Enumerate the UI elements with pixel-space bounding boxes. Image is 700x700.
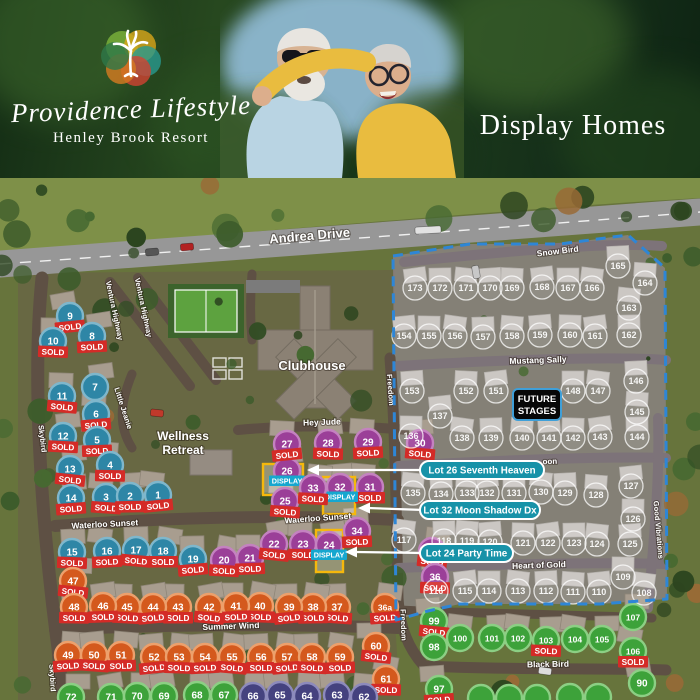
callout-label: Lot 32 Moon Shadow Dx [423, 506, 537, 517]
lot-marker-19: 19SOLD [178, 546, 209, 577]
lot-number: 18 [157, 547, 169, 558]
future-lot-number: 124 [589, 539, 604, 549]
tree [657, 603, 672, 618]
sold-badge-label: SOLD [110, 662, 133, 671]
lot-marker-8: 8SOLD [77, 323, 108, 353]
future-lot-number: 108 [636, 588, 651, 598]
future-lot-marker-146: 146 [624, 369, 648, 393]
sold-badge-label: SOLD [59, 504, 82, 515]
lot-number: 63 [331, 691, 343, 700]
lot-circle [524, 685, 550, 700]
lot-marker-68: 68 [184, 682, 210, 700]
callout-arrow-line [355, 552, 424, 553]
tree [216, 221, 243, 248]
lot-circle [468, 685, 494, 700]
sold-badge-label: SOLD [224, 612, 247, 622]
lot-number: 105 [595, 635, 609, 645]
lot-marker-103: 103SOLD [531, 627, 561, 657]
lot-marker-18: 18SOLD [148, 538, 178, 568]
sold-badge-label: SOLD [99, 472, 122, 481]
future-lot-number: 130 [533, 487, 548, 497]
future-lot-number: 126 [625, 514, 640, 524]
future-lot-marker-168: 168 [530, 275, 554, 299]
sold-badge: SOLD [53, 659, 84, 673]
lot-marker-107: 107 [620, 604, 646, 630]
tree [249, 322, 267, 340]
sold-badge: SOLD [190, 661, 221, 674]
sold-badge: SOLD [342, 535, 372, 548]
future-lot-number: 156 [447, 331, 462, 341]
lot-marker-106: 106SOLD [618, 638, 648, 668]
lot-marker-98: 98 [421, 634, 447, 660]
tree [662, 253, 672, 263]
lot-marker-71: 71 [98, 684, 124, 700]
future-lot-marker-166: 166 [580, 276, 604, 300]
sold-badge: SOLD [297, 661, 328, 674]
display-homes-page: Providence Lifestyle Henley Brook Resort… [0, 0, 700, 700]
sold-badge-label: SOLD [238, 565, 261, 575]
future-lot-number: 129 [557, 488, 572, 498]
sold-badge-label: SOLD [167, 664, 190, 674]
brand-subtitle: Henley Brook Resort [0, 130, 262, 147]
tree [555, 188, 582, 215]
future-lot-marker-138: 138 [450, 426, 474, 450]
future-lot-marker-156: 156 [443, 324, 467, 348]
future-lot-number: 145 [629, 407, 644, 417]
masterplan-map: Andrea DriveVentura HighwayVentura Highw… [0, 178, 700, 700]
sold-badge: SOLD [148, 556, 178, 568]
lot-marker-64: 64 [294, 683, 320, 700]
lot-marker-31: 31SOLD [355, 474, 385, 504]
sold-badge-label: SOLD [328, 664, 351, 674]
sold-badge: SOLD [115, 501, 145, 513]
display-badge-label: DISPLAY [325, 493, 356, 502]
sold-badge: SOLD [298, 492, 329, 505]
lot-marker-28: 28SOLD [313, 430, 343, 460]
future-lot-marker-135: 135 [401, 481, 425, 505]
sold-badge-label: SOLD [82, 661, 105, 672]
lot-marker-102: 102 [505, 625, 531, 651]
future-lot-number: 142 [565, 433, 580, 443]
future-lot-number: 121 [515, 538, 530, 548]
future-lot-marker-110: 110 [587, 580, 611, 604]
sold-badge: SOLD [56, 502, 87, 516]
future-stages-line2: STAGES [518, 406, 556, 417]
sold-badge-label: SOLD [373, 613, 396, 624]
future-lot-number: 157 [475, 332, 490, 342]
sold-badge-label: SOLD [356, 448, 379, 458]
callout-label: Lot 26 Seventh Heaven [428, 466, 535, 477]
future-lot-number: 148 [565, 386, 580, 396]
lot-marker-50: 50SOLD [79, 642, 110, 673]
tree [14, 676, 31, 693]
future-lot-marker-140: 140 [510, 426, 534, 450]
future-lot-marker-142: 142 [561, 426, 585, 450]
tree [646, 356, 650, 360]
lot-number: 31 [364, 483, 376, 494]
lot-circle [557, 684, 583, 700]
future-lot-marker-155: 155 [417, 324, 441, 348]
future-stages-badge: FUTURESTAGES [513, 389, 561, 420]
sold-badge: SOLD [77, 340, 108, 353]
street-label-heart-of-gold: Heart of Gold [512, 559, 566, 571]
lot-marker-edge [496, 685, 522, 700]
sold-badge-label: SOLD [51, 442, 74, 452]
future-lot-number: 167 [560, 283, 575, 293]
sold-badge-label: SOLD [316, 450, 339, 460]
sold-badge-label: SOLD [273, 507, 296, 518]
future-lot-marker-145: 145 [625, 400, 649, 424]
lot-marker-49: 49SOLD [53, 642, 84, 673]
future-lot-number: 136 [403, 431, 418, 441]
sold-badge: SOLD [164, 661, 194, 674]
future-lot-number: 123 [566, 538, 581, 548]
sold-badge: SOLD [79, 659, 110, 673]
tennis-court [168, 284, 244, 338]
tree [519, 366, 529, 376]
future-stages-line1: FUTURE [518, 394, 557, 405]
future-lot-number: 163 [621, 303, 636, 313]
lot-number: 72 [65, 693, 77, 700]
future-lot-marker-172: 172 [428, 276, 452, 300]
future-lot-number: 171 [458, 283, 473, 293]
sold-badge-label: SOLD [41, 348, 64, 358]
sold-badge-label: SOLD [325, 613, 348, 624]
lot-marker-27: 27SOLD [271, 431, 302, 462]
lot-marker-39: 39SOLD [273, 594, 304, 625]
street-label-oon: oon [542, 457, 557, 467]
lot-marker-7: 7 [82, 374, 108, 400]
tree [294, 331, 303, 340]
sold-badge-label: SOLD [302, 614, 325, 623]
future-lot-number: 115 [458, 586, 473, 596]
future-lot-marker-164: 164 [633, 271, 657, 295]
future-lot-number: 154 [396, 331, 411, 341]
future-lot-marker-111: 111 [561, 580, 585, 604]
lot-marker-59: 59SOLD [325, 644, 355, 674]
clubhouse-parking [246, 280, 300, 293]
future-lot-marker-153: 153 [400, 379, 424, 403]
future-lot-marker-152: 152 [454, 379, 478, 403]
lot-marker-42: 42SOLD [194, 594, 225, 625]
lot-marker-22: 22SOLD [259, 531, 290, 562]
future-lot-number: 147 [590, 386, 605, 396]
future-lot-number: 158 [504, 331, 519, 341]
display-badge-label: DISPLAY [314, 551, 345, 560]
sold-badge-label: SOLD [91, 613, 114, 623]
lot-marker-65: 65 [267, 682, 293, 700]
lot-marker-70: 70 [124, 683, 150, 700]
future-lot-number: 135 [405, 488, 420, 498]
tree [1, 492, 20, 511]
future-lot-number: 114 [482, 586, 497, 596]
tree [186, 415, 201, 430]
lot-number: 68 [191, 691, 203, 700]
lot-marker-15: 15SOLD [57, 539, 87, 569]
tree [126, 228, 146, 248]
lot-marker-edge [585, 684, 611, 700]
future-lot-marker-121: 121 [511, 531, 535, 555]
sold-badge: SOLD [618, 656, 648, 668]
masterplan-svg: Andrea DriveVentura HighwayVentura Highw… [0, 178, 700, 700]
lot-number: 2 [127, 492, 133, 503]
sold-badge-label: SOLD [115, 613, 138, 623]
future-lot-number: 125 [622, 539, 637, 549]
lot-number: 90 [636, 679, 648, 690]
sold-badge-label: SOLD [152, 558, 175, 567]
future-lot-marker-113: 113 [506, 579, 530, 603]
tree [34, 469, 52, 487]
sold-badge-label: SOLD [94, 503, 117, 514]
lot-number: 100 [453, 634, 467, 644]
future-lot-number: 137 [432, 411, 447, 421]
tree [621, 211, 632, 222]
sold-badge-label: SOLD [375, 686, 398, 695]
street-label-hey-jude: Hey Jude [303, 416, 341, 427]
lot-marker-100: 100 [447, 625, 473, 651]
tree [357, 602, 370, 615]
tree [85, 212, 95, 222]
lot-number: 7 [92, 383, 98, 394]
lot-marker-10: 10SOLD [38, 328, 68, 358]
lot-number: 43 [172, 603, 184, 614]
lot-marker-edge [468, 685, 494, 700]
tree [36, 185, 47, 196]
future-lot-marker-160: 160 [558, 323, 582, 347]
future-lot-number: 139 [483, 433, 498, 443]
display-badge-label: DISPLAY [272, 477, 303, 486]
lot-marker-33: 33SOLD [298, 475, 329, 505]
tree [57, 267, 80, 290]
sold-badge: SOLD [48, 440, 79, 453]
future-lot-number: 110 [592, 587, 607, 597]
future-lot-number: 116 [429, 586, 444, 596]
lot-number: 71 [105, 693, 117, 700]
place-label-wellness: Wellness [157, 429, 209, 443]
future-lot-marker-151: 151 [484, 379, 508, 403]
sold-badge: SOLD [235, 562, 265, 575]
future-lot-marker-129: 129 [553, 481, 577, 505]
future-lot-marker-147: 147 [586, 379, 610, 403]
lot-number: 103 [539, 636, 553, 646]
future-lot-number: 161 [587, 331, 602, 341]
lot-marker-53: 53SOLD [164, 644, 194, 674]
future-lot-number: 134 [433, 489, 448, 499]
tree [246, 396, 254, 404]
callout-label: Lot 24 Party Time [426, 549, 508, 560]
future-lot-marker-165: 165 [606, 254, 630, 278]
future-lot-marker-137: 137 [428, 404, 452, 428]
lot-number: 56 [255, 653, 267, 664]
sold-badge-label: SOLD [300, 663, 323, 673]
future-lot-number: 166 [584, 283, 599, 293]
future-lot-number: 117 [397, 535, 412, 545]
lot-number: 69 [158, 692, 170, 700]
lot-marker-90: 90 [629, 670, 655, 696]
future-lot-number: 144 [629, 432, 644, 442]
future-lot-marker-171: 171 [454, 276, 478, 300]
tree [531, 207, 556, 232]
sold-badge-label: SOLD [63, 614, 86, 623]
future-lot-marker-154: 154 [392, 324, 416, 348]
lot-marker-41: 41SOLD [221, 593, 252, 623]
sold-badge-label: SOLD [193, 663, 216, 673]
future-lot-number: 133 [459, 488, 474, 498]
sold-badge-label: SOLD [119, 503, 142, 512]
future-lot-number: 140 [514, 433, 529, 443]
future-lot-marker-125: 125 [618, 532, 642, 556]
place-label-clubhouse: Clubhouse [278, 358, 345, 373]
future-lot-marker-116: 116 [424, 579, 448, 603]
future-lot-marker-144: 144 [625, 425, 649, 449]
future-lot-number: 132 [479, 488, 494, 498]
sold-badge: SOLD [270, 505, 301, 519]
brand-logo [97, 22, 165, 90]
future-lot-marker-128: 128 [584, 483, 608, 507]
sold-badge: SOLD [88, 610, 118, 623]
future-lot-number: 122 [540, 538, 555, 548]
future-lot-number: 111 [566, 587, 580, 597]
sold-badge: SOLD [246, 662, 276, 674]
future-lot-marker-139: 139 [479, 426, 503, 450]
lot-marker-edge [524, 685, 550, 700]
tree [666, 674, 684, 692]
future-lot-marker-161: 161 [583, 324, 607, 348]
vehicle [415, 226, 441, 234]
future-lot-number: 173 [407, 283, 422, 293]
future-lot-marker-123: 123 [562, 531, 586, 555]
lot-marker-25: 25SOLD [270, 488, 301, 519]
future-lot-marker-122: 122 [536, 531, 560, 555]
future-lot-number: 170 [482, 283, 497, 293]
tree [350, 390, 372, 412]
vehicle [150, 409, 164, 417]
future-lot-marker-157: 157 [471, 325, 495, 349]
lot-number: 106 [626, 647, 640, 657]
future-lot-number: 109 [615, 572, 630, 582]
future-lot-marker-109: 109 [611, 565, 635, 589]
lot-marker-104: 104 [562, 626, 588, 652]
tree [3, 220, 31, 248]
lot-marker-105: 105 [589, 626, 615, 652]
future-lot-marker-126: 126 [621, 507, 645, 531]
future-lot-marker-173: 173 [403, 276, 427, 300]
future-lot-marker-141: 141 [537, 426, 561, 450]
future-lot-number: 160 [562, 330, 577, 340]
tree [13, 265, 32, 284]
future-lot-marker-136: 136 [399, 424, 423, 448]
future-lot-number: 138 [454, 433, 469, 443]
lot-number: 64 [301, 692, 313, 700]
future-lot-number: 146 [628, 376, 643, 386]
future-lot-marker-114: 114 [477, 579, 501, 603]
lot-marker-4: 4SOLD [95, 452, 125, 482]
future-lot-number: 159 [532, 330, 547, 340]
sold-badge: SOLD [106, 660, 136, 672]
lot-circle [585, 684, 611, 700]
sold-badge-label: SOLD [250, 664, 273, 673]
tree [128, 248, 139, 259]
lot-number: 102 [511, 634, 525, 644]
sold-badge: SOLD [221, 610, 252, 623]
future-lot-marker-143: 143 [588, 425, 612, 449]
tree [673, 571, 695, 593]
sold-badge: SOLD [59, 612, 89, 624]
future-lot-number: 162 [621, 330, 636, 340]
sold-badge-label: SOLD [427, 695, 450, 700]
lot-number: 101 [485, 634, 499, 644]
sold-badge-label: SOLD [359, 494, 382, 503]
future-lot-number: 164 [637, 278, 652, 288]
lot-number: 65 [274, 691, 286, 700]
sold-badge: SOLD [531, 644, 561, 657]
tree [215, 298, 223, 306]
lot-marker-72: 72 [58, 684, 84, 700]
future-lot-marker-127: 127 [619, 474, 643, 498]
lot-marker-12: 12SOLD [48, 423, 79, 453]
sold-badge-label: SOLD [56, 661, 79, 672]
sold-badge-label: SOLD [95, 557, 118, 567]
lot-marker-46: 46SOLD [88, 593, 118, 623]
future-lot-number: 152 [458, 386, 473, 396]
vehicle [180, 243, 194, 251]
lot-marker-edge [557, 684, 583, 700]
future-lot-marker-124: 124 [585, 532, 609, 556]
lot-marker-2: 2SOLD [115, 483, 145, 513]
lot-number: 36a [378, 603, 392, 613]
sold-badge-label: SOLD [248, 613, 271, 623]
lot-number: 66 [247, 692, 259, 700]
lot-marker-14: 14SOLD [56, 485, 87, 516]
future-lot-number: 155 [421, 331, 436, 341]
future-lot-number: 165 [610, 261, 625, 271]
future-lot-number: 143 [592, 432, 607, 442]
sold-badge: SOLD [95, 470, 125, 482]
future-lot-number: 153 [404, 386, 419, 396]
future-lot-number: 131 [506, 488, 521, 498]
lot-number: 98 [428, 643, 440, 654]
page-title: Display Homes [448, 110, 698, 142]
tree [344, 306, 358, 320]
future-lot-number: 112 [539, 586, 554, 596]
lot-marker-48: 48SOLD [59, 594, 89, 624]
place-label-retreat: Retreat [162, 443, 203, 457]
tree [66, 209, 89, 232]
sold-badge: SOLD [313, 447, 343, 460]
future-lot-marker-158: 158 [500, 324, 524, 348]
sold-badge-label: SOLD [60, 559, 83, 569]
tree [109, 342, 119, 352]
sold-badge-label: SOLD [80, 342, 103, 352]
lot-marker-55: 55SOLD [217, 644, 248, 675]
lot-marker-17: 17SOLD [121, 537, 152, 568]
lot-number: 62 [358, 693, 370, 700]
lot-marker-101: 101 [479, 625, 505, 651]
future-lot-number: 169 [504, 283, 519, 293]
sold-badge: SOLD [38, 345, 68, 358]
lot-marker-69: 69 [151, 683, 177, 700]
future-lot-number: 168 [534, 282, 549, 292]
future-lot-number: 151 [488, 386, 503, 396]
lot-marker-66: 66 [240, 683, 266, 700]
future-lot-marker-163: 163 [617, 296, 641, 320]
future-lot-number: 127 [623, 481, 638, 491]
lot-marker-13: 13SOLD [55, 456, 86, 487]
lot-marker-63: 63 [324, 682, 350, 700]
future-lot-marker-159: 159 [528, 323, 552, 347]
sold-badge-label: SOLD [301, 494, 324, 504]
tree [500, 192, 528, 220]
